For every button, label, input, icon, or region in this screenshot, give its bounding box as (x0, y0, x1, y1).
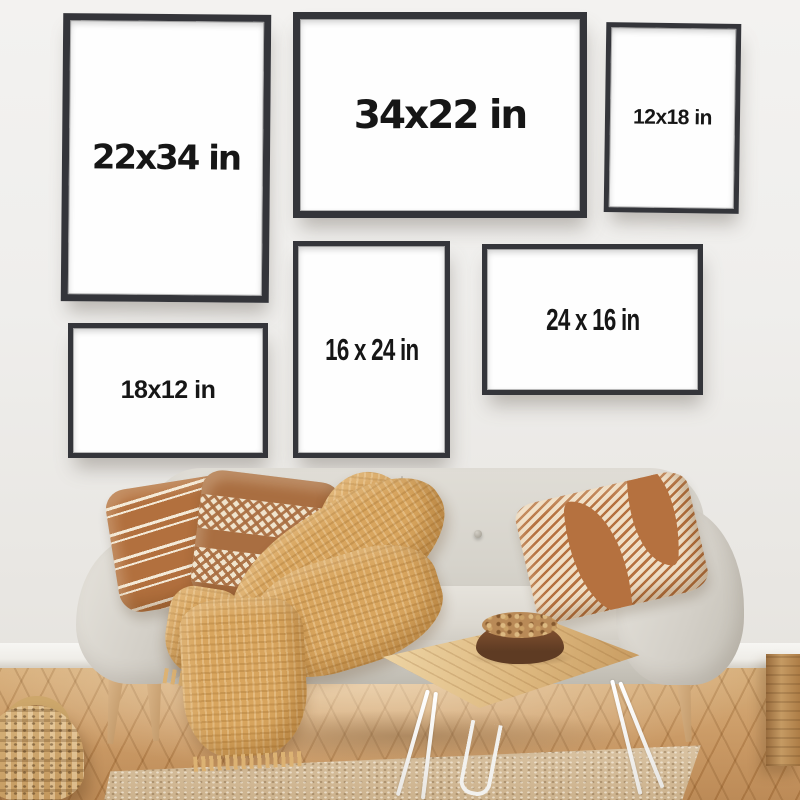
pillow-leaf-motif (626, 468, 681, 566)
frame-16x24: 16 x 24 in (293, 241, 450, 458)
sofa-button-tuft (474, 530, 482, 538)
frame-24x16: 24 x 16 in (482, 244, 703, 395)
frame-size-label: 16 x 24 in (325, 332, 418, 368)
throw-blanket-hanging (178, 595, 310, 759)
living-room-scene: 22x34 in 34x22 in 12x18 in 18x12 in 16 x… (0, 0, 800, 800)
frame-18x12: 18x12 in (68, 323, 268, 458)
pillow-leaf-motif (563, 497, 633, 618)
frame-34x22: 34x22 in (293, 12, 587, 218)
frame-size-label: 34x22 in (354, 93, 526, 138)
frame-22x34: 22x34 in (61, 13, 272, 303)
frame-size-label: 24 x 16 in (546, 302, 639, 338)
nuts (482, 612, 558, 638)
frame-size-label: 22x34 in (92, 137, 241, 178)
frame-size-label: 12x18 in (633, 105, 712, 130)
wood-side-block (766, 654, 800, 766)
frame-12x18: 12x18 in (604, 22, 742, 214)
frame-size-label: 18x12 in (121, 376, 216, 405)
